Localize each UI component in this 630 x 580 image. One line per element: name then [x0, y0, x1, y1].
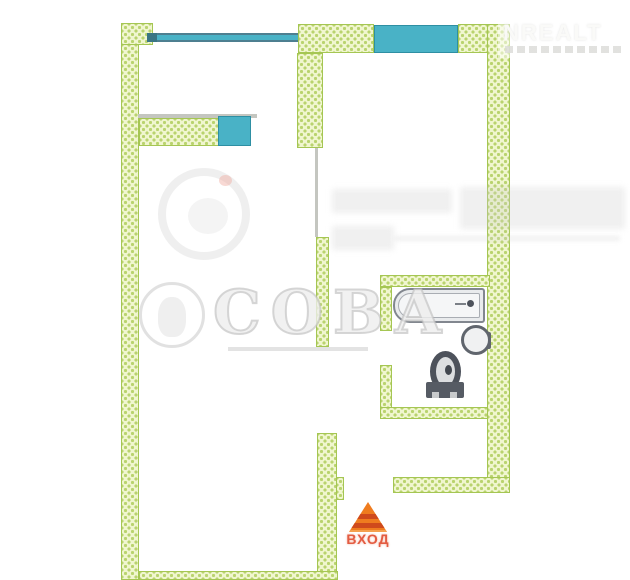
- bathtub-faucet-icon: [467, 300, 474, 307]
- bathtub-faucet-pipe: [455, 303, 466, 305]
- wall-right: [487, 24, 510, 479]
- wall-middle-opening-line: [315, 148, 318, 237]
- washbasin-icon: [461, 325, 491, 355]
- entrance-door-jamb: [336, 477, 344, 500]
- balcony-glazing-endcap: [147, 33, 157, 42]
- toilet-foot-right: [450, 392, 457, 398]
- floor-plan: ВХОД СОВА NREALT: [0, 0, 630, 580]
- watermark-text-blur-3: [332, 226, 394, 250]
- owl-logo-icon: [139, 282, 205, 348]
- round-logo-accent: [219, 175, 232, 186]
- wall-top-middle: [298, 24, 374, 53]
- watermark-text-blur-1: [332, 189, 452, 213]
- round-logo-inner: [188, 198, 228, 234]
- round-logo-icon: [158, 168, 250, 260]
- bathroom-wall-left-upper: [380, 287, 392, 331]
- brand-watermark-veil: [498, 18, 630, 58]
- owl-logo-body: [158, 297, 186, 337]
- bathroom-wall-top: [380, 275, 490, 287]
- balcony-glazing-window: [147, 33, 298, 42]
- bathtub-icon: [393, 288, 485, 323]
- wall-middle-upper: [297, 53, 323, 148]
- wall-middle-lower: [317, 433, 337, 580]
- balcony-inner-wall: [139, 118, 219, 146]
- wall-middle-thin: [316, 237, 329, 347]
- bathroom-wall-bottom: [380, 407, 488, 419]
- top-right-brand-watermark: NREALT: [503, 20, 630, 46]
- entrance-arrow-icon: [348, 501, 388, 533]
- balcony-inner-window: [218, 116, 251, 146]
- toilet-foot-left: [432, 392, 439, 398]
- top-right-brand-subline: [505, 46, 625, 53]
- toilet-drain: [445, 365, 452, 375]
- wall-bottom-right: [393, 477, 510, 493]
- window-top-right-room: [374, 25, 458, 53]
- entrance-label: ВХОД: [342, 531, 394, 547]
- wall-left: [121, 23, 139, 580]
- bathroom-wall-left-lower: [380, 365, 392, 408]
- watermark-text-blur-2: [460, 187, 625, 229]
- wall-bottom: [139, 571, 338, 580]
- center-brand-underline: [228, 347, 368, 351]
